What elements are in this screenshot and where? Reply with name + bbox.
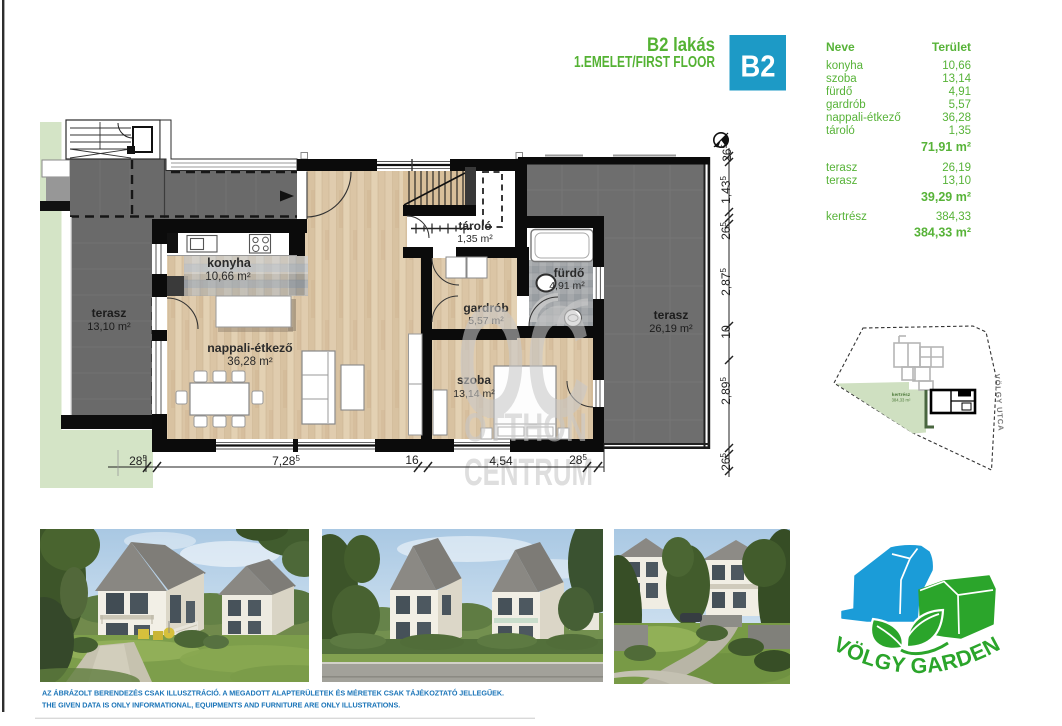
svg-text:OTTHON: OTTHON <box>464 406 587 450</box>
svg-text:2,895: 2,895 <box>719 377 733 405</box>
svg-text:1,435: 1,435 <box>719 176 733 204</box>
svg-text:nappali-étkező: nappali-étkező <box>207 341 293 355</box>
svg-text:B2: B2 <box>741 49 776 84</box>
svg-text:fürdő: fürdő <box>826 86 852 98</box>
svg-text:36,28 m²: 36,28 m² <box>227 356 273 368</box>
svg-text:2,875: 2,875 <box>719 268 733 296</box>
svg-text:konyha: konyha <box>826 60 864 72</box>
svg-text:konyha: konyha <box>207 256 252 270</box>
svg-text:36,28: 36,28 <box>942 112 971 124</box>
svg-text:265: 265 <box>720 144 734 162</box>
svg-text:B2 lakás: B2 lakás <box>647 34 715 56</box>
svg-text:7,285: 7,285 <box>272 454 300 468</box>
svg-text:Neve: Neve <box>826 40 855 54</box>
svg-text:10: 10 <box>719 325 733 339</box>
svg-text:13,14: 13,14 <box>942 73 971 85</box>
svg-text:13,10: 13,10 <box>942 175 971 187</box>
svg-text:71,91 m²: 71,91 m² <box>921 140 971 154</box>
svg-text:265: 265 <box>719 222 733 240</box>
svg-text:terasz: terasz <box>826 175 858 187</box>
svg-text:terasz: terasz <box>92 306 127 320</box>
svg-text:4,91: 4,91 <box>949 86 971 98</box>
svg-text:265: 265 <box>719 453 733 471</box>
svg-text:10,66: 10,66 <box>942 60 971 72</box>
svg-text:384,33 m²: 384,33 m² <box>914 226 971 240</box>
svg-text:terasz: terasz <box>654 308 689 322</box>
svg-text:1,35: 1,35 <box>949 125 971 137</box>
svg-text:1,35 m²: 1,35 m² <box>457 233 493 245</box>
svg-text:Terület: Terület <box>932 40 971 54</box>
svg-text:10,66 m²: 10,66 m² <box>205 271 251 283</box>
svg-text:384,33: 384,33 <box>936 211 971 223</box>
svg-text:384,33 m²: 384,33 m² <box>892 398 911 403</box>
svg-text:kertrész: kertrész <box>826 211 867 223</box>
svg-text:16: 16 <box>405 453 419 467</box>
svg-text:39,29 m²: 39,29 m² <box>921 190 971 204</box>
svg-text:26,19 m²: 26,19 m² <box>649 323 693 335</box>
svg-text:AZ ÁBRÁZOLT BERENDEZÉS CSAK IL: AZ ÁBRÁZOLT BERENDEZÉS CSAK ILLUSZTRÁCIÓ… <box>42 689 504 698</box>
svg-text:1.EMELET/FIRST FLOOR: 1.EMELET/FIRST FLOOR <box>574 54 715 71</box>
svg-text:tároló: tároló <box>826 125 855 137</box>
svg-text:26,19: 26,19 <box>942 162 971 174</box>
svg-text:gardrób: gardrób <box>826 99 866 111</box>
svg-text:nappali-étkező: nappali-étkező <box>826 112 901 124</box>
svg-text:5,57: 5,57 <box>949 99 971 111</box>
svg-text:szoba: szoba <box>826 73 857 85</box>
svg-text:tároló: tároló <box>458 219 491 233</box>
svg-text:4,54: 4,54 <box>489 454 513 468</box>
svg-text:terasz: terasz <box>826 162 858 174</box>
svg-text:THE GIVEN DATA IS ONLY INFORMA: THE GIVEN DATA IS ONLY INFORMATIONAL, EQ… <box>42 701 400 710</box>
svg-text:13,10 m²: 13,10 m² <box>87 321 131 333</box>
